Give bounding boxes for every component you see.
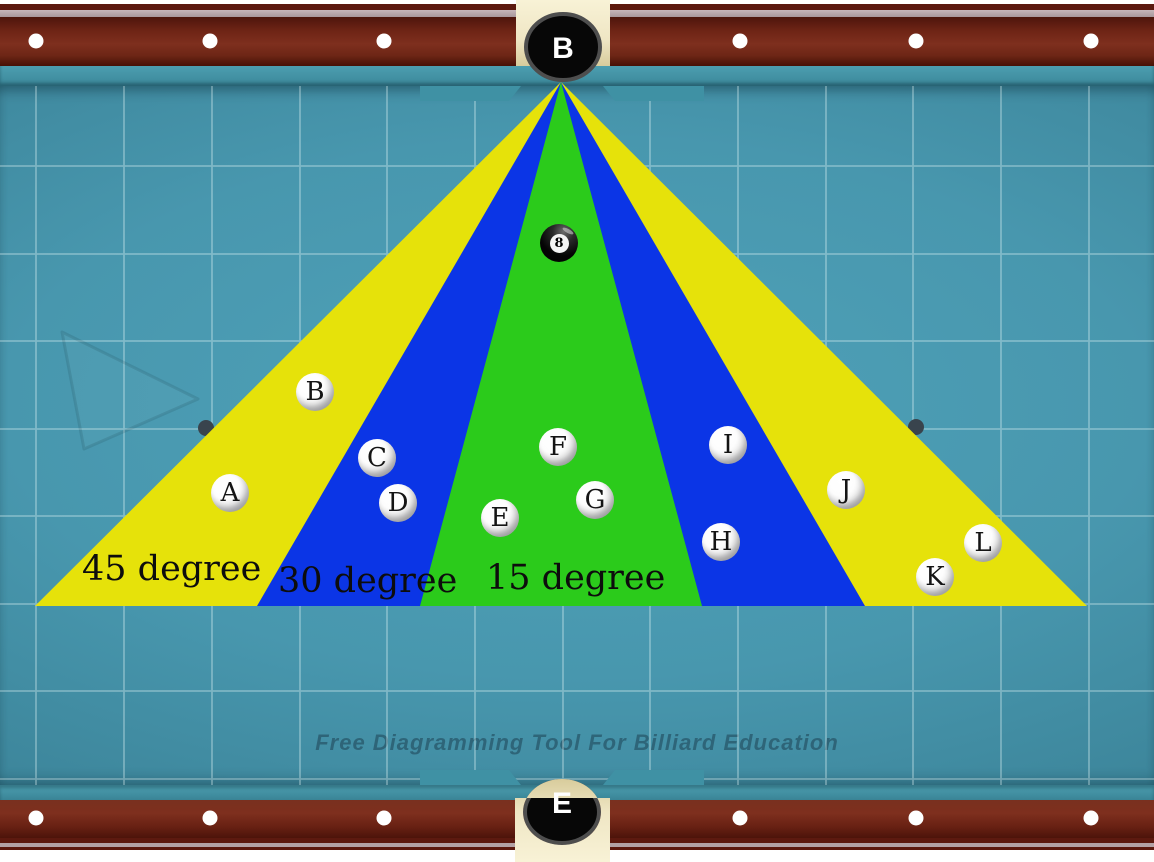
zone-label-30: 30 degree: [278, 561, 457, 601]
ball-letter: I: [723, 432, 733, 458]
ball-G[interactable]: G: [576, 481, 614, 519]
ball-letter: C: [367, 445, 387, 471]
ball-K[interactable]: K: [916, 558, 954, 596]
ball-letter: G: [585, 487, 606, 513]
ball-letter: K: [925, 564, 944, 590]
ball-B[interactable]: B: [296, 373, 334, 411]
billiard-table-diagram: Free Diagramming Tool For Billiard Educa…: [0, 0, 1154, 862]
eight-ball[interactable]: 8: [540, 224, 578, 262]
ball-letter: F: [549, 434, 567, 460]
eight-ball-number: 8: [550, 234, 569, 253]
ball-A[interactable]: A: [211, 474, 249, 512]
rack-outline-ghost: [62, 332, 198, 449]
ball-E[interactable]: E: [481, 499, 519, 537]
pocket-e-label: E: [552, 787, 572, 820]
ball-letter: D: [388, 490, 409, 516]
ball-letter: E: [491, 505, 510, 531]
pocket-b-label: B: [552, 32, 574, 65]
ball-letter: J: [841, 477, 851, 503]
ball-letter: H: [710, 529, 733, 555]
diagram-overlay: B E: [0, 0, 1154, 862]
ball-F[interactable]: F: [539, 428, 577, 466]
ball-D[interactable]: D: [379, 484, 417, 522]
ball-letter: B: [305, 379, 324, 405]
zone-label-45: 45 degree: [82, 549, 261, 589]
ball-letter: L: [974, 530, 991, 556]
zone-label-15: 15 degree: [486, 558, 665, 598]
ball-I[interactable]: I: [709, 426, 747, 464]
ball-H[interactable]: H: [702, 523, 740, 561]
ball-J[interactable]: J: [827, 471, 865, 509]
ball-L[interactable]: L: [964, 524, 1002, 562]
ball-letter: A: [221, 480, 240, 506]
ball-C[interactable]: C: [358, 439, 396, 477]
